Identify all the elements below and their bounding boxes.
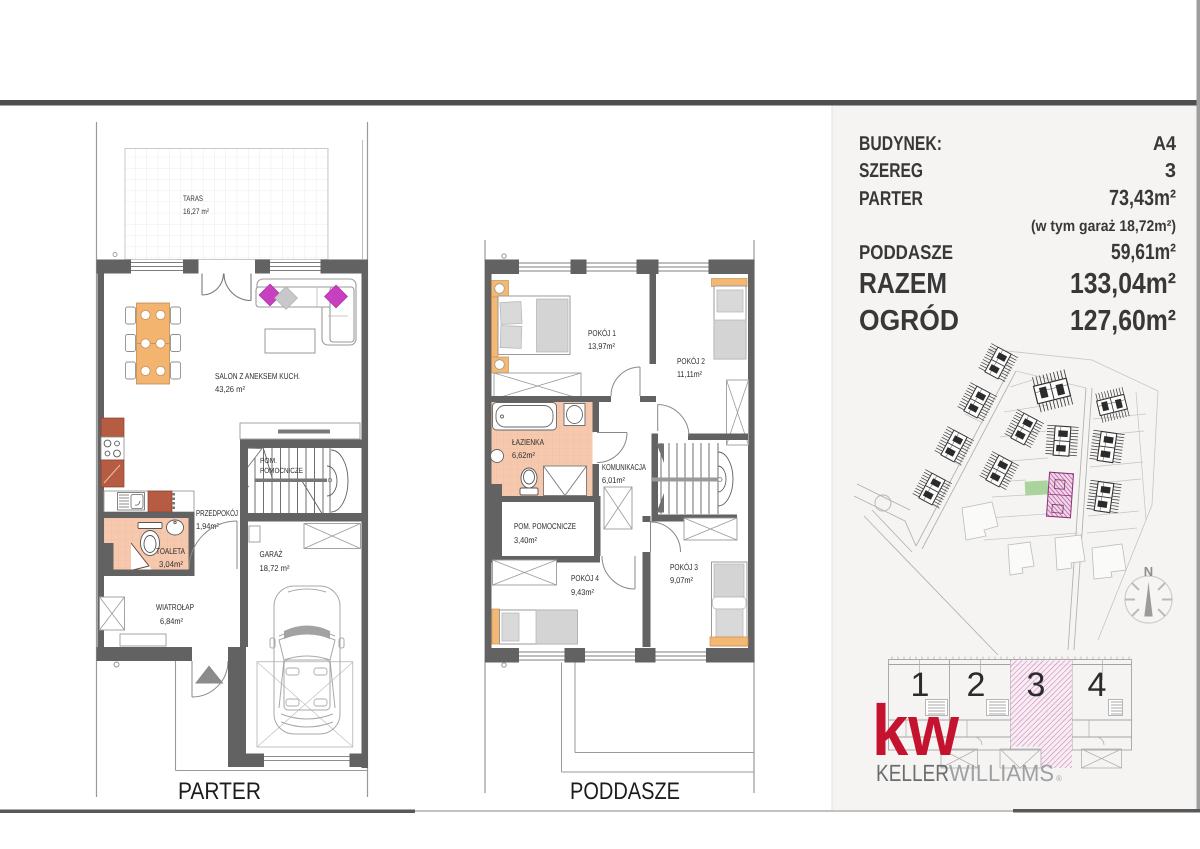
svg-text:BUDYNEK:: BUDYNEK: (859, 133, 942, 155)
svg-text:SZEREG: SZEREG (859, 160, 923, 182)
svg-text:A4: A4 (1153, 133, 1177, 155)
svg-text:73,43m²: 73,43m² (1109, 185, 1176, 210)
svg-text:4: 4 (1088, 666, 1107, 704)
svg-text:GARAŻ: GARAŻ (260, 549, 283, 559)
svg-text:POKÓJ 3: POKÓJ 3 (670, 562, 698, 572)
svg-text:18,72 m²: 18,72 m² (260, 563, 290, 573)
svg-text:3,04m²: 3,04m² (159, 559, 183, 569)
svg-text:9,43m²: 9,43m² (571, 587, 594, 597)
svg-text:133,04m²: 133,04m² (1070, 268, 1176, 300)
svg-text:ŁAZIENKA: ŁAZIENKA (512, 437, 544, 447)
svg-text:6,84m²: 6,84m² (160, 616, 183, 626)
svg-text:43,26 m²: 43,26 m² (215, 384, 245, 394)
svg-text:N: N (1144, 564, 1153, 579)
svg-text:3: 3 (1027, 666, 1046, 704)
svg-text:6,62m²: 6,62m² (512, 450, 535, 460)
svg-text:(w tym garaż 18,72m²): (w tym garaż 18,72m²) (1031, 218, 1176, 235)
svg-text:PODDASZE: PODDASZE (570, 778, 680, 805)
svg-text:9,07m²: 9,07m² (670, 575, 693, 585)
svg-text:3,40m²: 3,40m² (514, 535, 537, 545)
svg-text:59,61m²: 59,61m² (1111, 239, 1176, 264)
svg-text:16,27 m²: 16,27 m² (183, 207, 209, 216)
svg-text:®: ® (1056, 774, 1062, 783)
svg-text:WILLIAMS: WILLIAMS (949, 760, 1054, 786)
svg-text:POKÓJ 2: POKÓJ 2 (677, 356, 705, 366)
svg-text:WIATROŁAP: WIATROŁAP (156, 602, 194, 612)
svg-text:POM.: POM. (260, 456, 277, 465)
svg-text:TARAS: TARAS (183, 194, 203, 203)
svg-text:PARTER: PARTER (859, 188, 923, 210)
svg-text:13,97m²: 13,97m² (588, 341, 615, 351)
svg-text:2: 2 (967, 666, 986, 704)
svg-text:RAZEM: RAZEM (859, 268, 947, 300)
svg-text:OGRÓD: OGRÓD (859, 304, 959, 337)
svg-text:POMOCNICZE: POMOCNICZE (260, 466, 303, 475)
svg-text:KOMUNIKACJA: KOMUNIKACJA (602, 462, 646, 472)
svg-text:POKÓJ 1: POKÓJ 1 (588, 328, 616, 338)
svg-text:TOALETA: TOALETA (156, 546, 185, 556)
svg-text:PRZEDPOKÓJ: PRZEDPOKÓJ (196, 508, 238, 518)
svg-text:POM. POMOCNICZE: POM. POMOCNICZE (514, 521, 576, 531)
svg-text:6,01m²: 6,01m² (602, 475, 625, 485)
svg-text:11,11m²: 11,11m² (677, 369, 702, 379)
svg-text:KELLER: KELLER (876, 760, 949, 786)
svg-text:kw: kw (872, 691, 960, 771)
svg-text:SALON Z ANEKSEM KUCH.: SALON Z ANEKSEM KUCH. (215, 371, 300, 381)
svg-text:3: 3 (1165, 160, 1176, 182)
svg-text:POKÓJ 4: POKÓJ 4 (571, 573, 599, 583)
svg-text:PODDASZE: PODDASZE (859, 242, 953, 264)
svg-text:PARTER: PARTER (178, 778, 261, 805)
svg-text:127,60m²: 127,60m² (1070, 305, 1176, 337)
